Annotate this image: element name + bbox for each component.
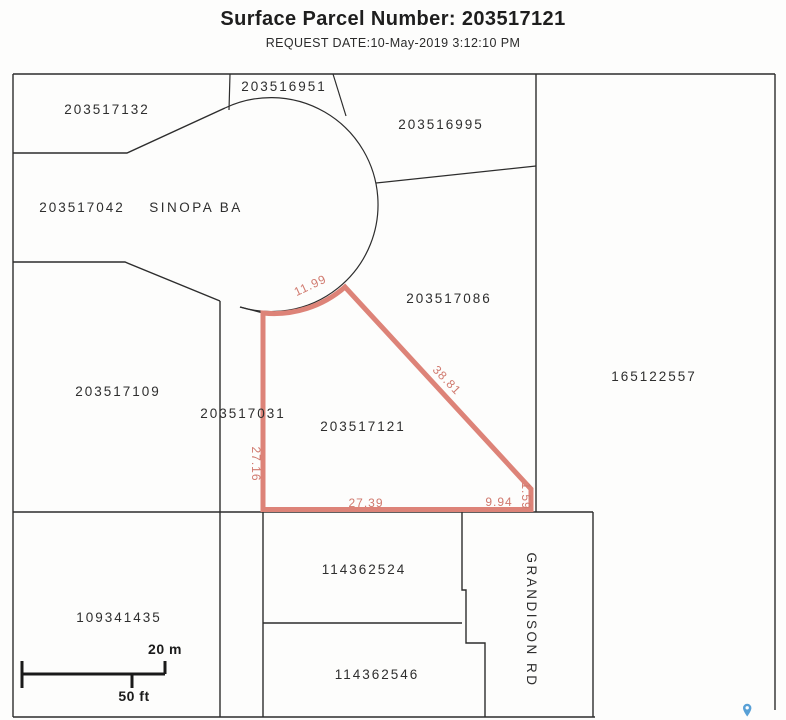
dimension-south-east: 9.94 — [485, 495, 512, 509]
parcel-label-114362524: 114362524 — [322, 562, 407, 577]
parcel-label-203517031: 203517031 — [200, 406, 286, 421]
dimension-west-side: 27.16 — [249, 446, 263, 481]
parcel-label-114362546: 114362546 — [335, 667, 420, 682]
parcel-label-203517042: 203517042 — [39, 200, 125, 215]
dimension-labels: 11.99 38.81 27.16 27.39 9.94 1.59 — [249, 272, 533, 510]
highlighted-parcel-outline — [263, 287, 531, 510]
parcel-map-report: Surface Parcel Number: 203517121 REQUEST… — [0, 0, 786, 720]
dimension-east-side: 1.59 — [519, 482, 533, 509]
parcel-label-109341435: 109341435 — [76, 610, 162, 625]
cul-de-sac-arc — [225, 98, 378, 312]
street-label-sinopa-ba: SINOPA BA — [149, 200, 243, 215]
parcel-labels: 203517132 203516951 203516995 203517042 … — [39, 79, 697, 682]
scale-metric-label: 20 m — [148, 641, 182, 657]
dimension-northeast: 38.81 — [430, 363, 464, 398]
street-labels: SINOPA BA GRANDISON RD — [149, 200, 539, 688]
dimension-south-main: 27.39 — [348, 496, 383, 510]
scale-imperial-label: 50 ft — [118, 688, 149, 704]
parcel-label-203517132: 203517132 — [64, 102, 150, 117]
location-pin-icon — [743, 704, 751, 717]
parcel-map: 203517132 203516951 203516995 203517042 … — [0, 0, 786, 720]
parcel-label-203517121: 203517121 — [320, 419, 406, 434]
parcel-label-203517086: 203517086 — [406, 291, 492, 306]
parcel-label-203517109: 203517109 — [75, 384, 161, 399]
parcel-label-165122557: 165122557 — [611, 369, 697, 384]
dimension-arc-north: 11.99 — [292, 272, 329, 299]
street-label-grandison-rd: GRANDISON RD — [524, 552, 539, 687]
parcel-label-203516995: 203516995 — [398, 117, 484, 132]
scale-bar: 20 m 50 ft — [22, 641, 182, 704]
parcel-label-203516951: 203516951 — [241, 79, 327, 94]
